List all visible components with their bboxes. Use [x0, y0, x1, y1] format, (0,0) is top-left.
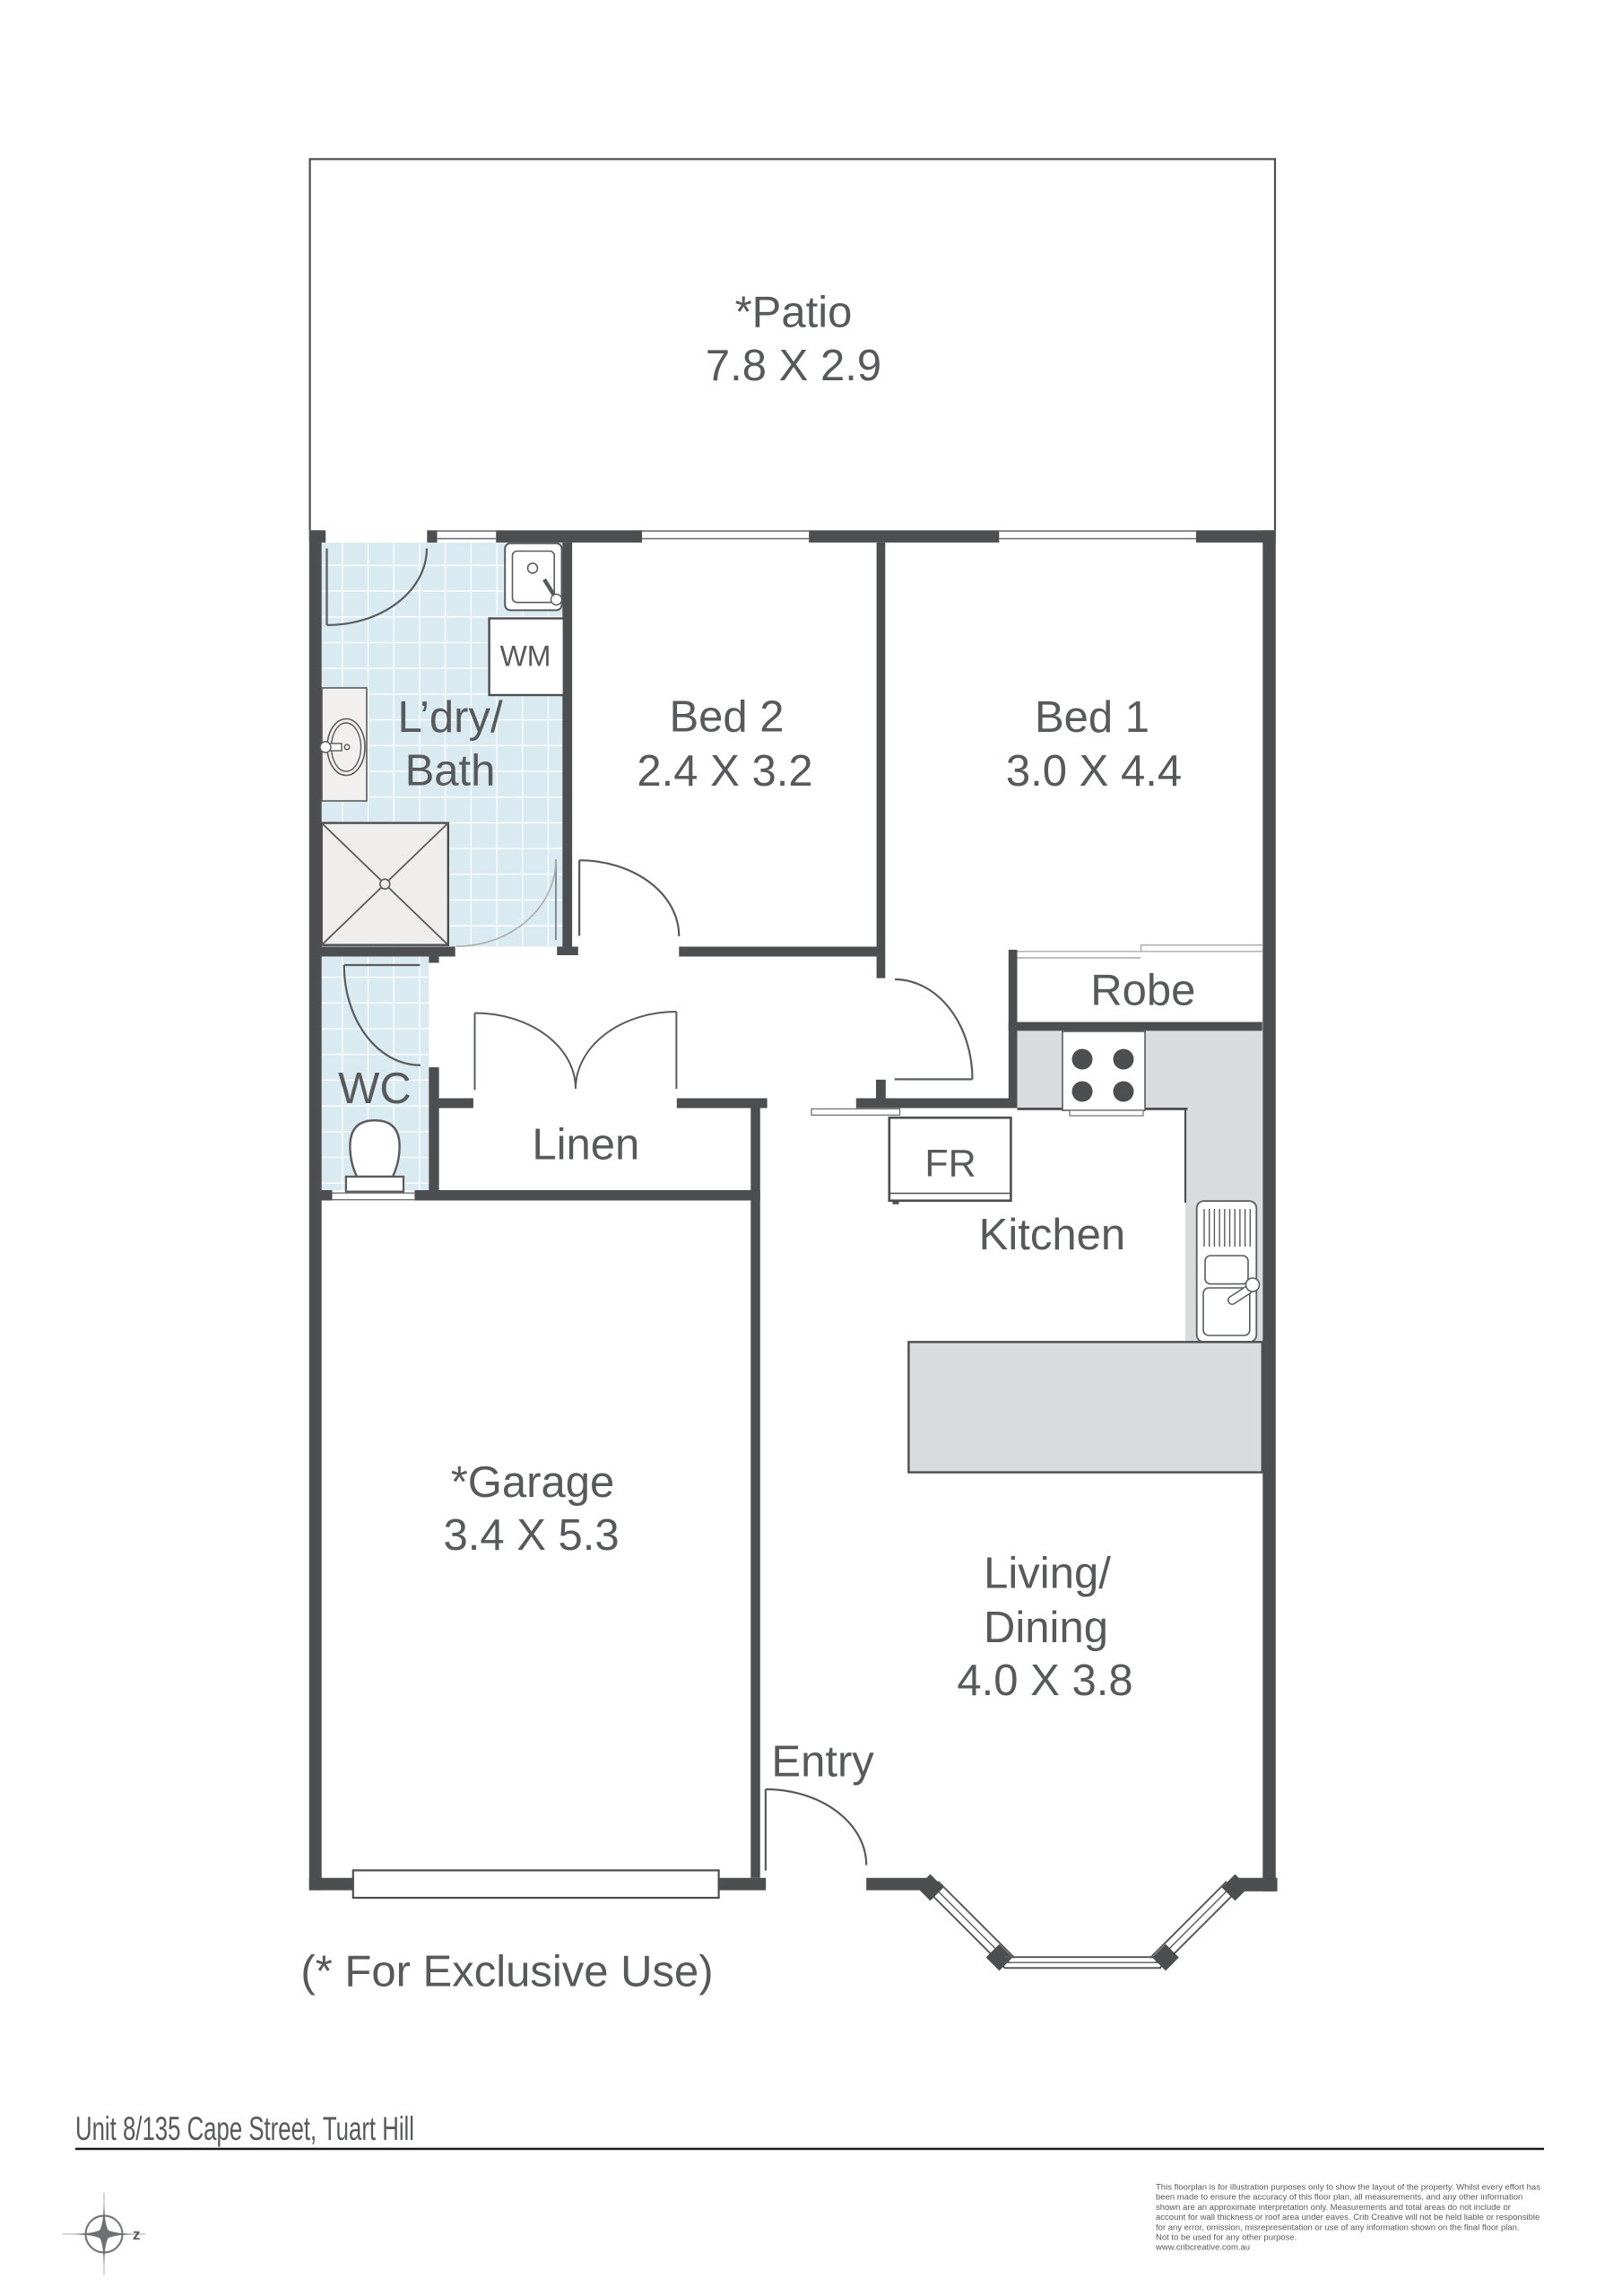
- svg-text:WM: WM: [500, 640, 551, 673]
- svg-text:This floorplan is for illustra: This floorplan is for illustration purpo…: [1156, 2183, 1540, 2193]
- svg-text:*Patio: *Patio: [735, 289, 853, 337]
- svg-text:Bed 1: Bed 1: [1035, 693, 1149, 742]
- svg-text:shown are an approximate inter: shown are an approximate interpretation …: [1156, 2203, 1511, 2213]
- svg-text:4.0 X 3.8: 4.0 X 3.8: [957, 1657, 1132, 1705]
- svg-text:Unit 8/135 Cape Street, Tuart: Unit 8/135 Cape Street, Tuart Hill: [75, 2109, 414, 2147]
- svg-text:z: z: [133, 2226, 141, 2243]
- svg-text:Robe: Robe: [1090, 967, 1195, 1015]
- svg-text:www.cribcreative.com.au: www.cribcreative.com.au: [1155, 2243, 1250, 2253]
- svg-text:for any error, omission, misre: for any error, omission, misrepresentati…: [1156, 2222, 1520, 2232]
- svg-text:Kitchen: Kitchen: [979, 1211, 1125, 1259]
- svg-text:2.4 X 3.2: 2.4 X 3.2: [637, 747, 812, 796]
- svg-text:3.4 X 5.3: 3.4 X 5.3: [444, 1511, 620, 1560]
- svg-text:account for wall thickness or: account for wall thickness or roof area …: [1156, 2213, 1540, 2222]
- svg-text:Not to be used for any other p: Not to be used for any other purpose.: [1156, 2233, 1297, 2243]
- svg-text:Bed 2: Bed 2: [669, 693, 784, 742]
- svg-text:Dining: Dining: [984, 1604, 1108, 1652]
- svg-text:Living/: Living/: [984, 1549, 1111, 1597]
- svg-text:WC: WC: [338, 1065, 412, 1113]
- svg-text:*Garage: *Garage: [451, 1458, 615, 1507]
- svg-text:Entry: Entry: [771, 1738, 874, 1787]
- svg-text:(* For Exclusive Use): (* For Exclusive Use): [300, 1947, 713, 1996]
- svg-text:FR: FR: [924, 1143, 976, 1186]
- svg-text:Bath: Bath: [405, 746, 496, 795]
- svg-text:3.0 X 4.4: 3.0 X 4.4: [1006, 747, 1182, 796]
- svg-text:7.8 X 2.9: 7.8 X 2.9: [706, 342, 881, 390]
- svg-text:L’dry/: L’dry/: [397, 693, 503, 742]
- svg-text:Linen: Linen: [532, 1121, 639, 1170]
- svg-text:been made to ensure the accura: been made to ensure the accuracy of this…: [1156, 2193, 1522, 2203]
